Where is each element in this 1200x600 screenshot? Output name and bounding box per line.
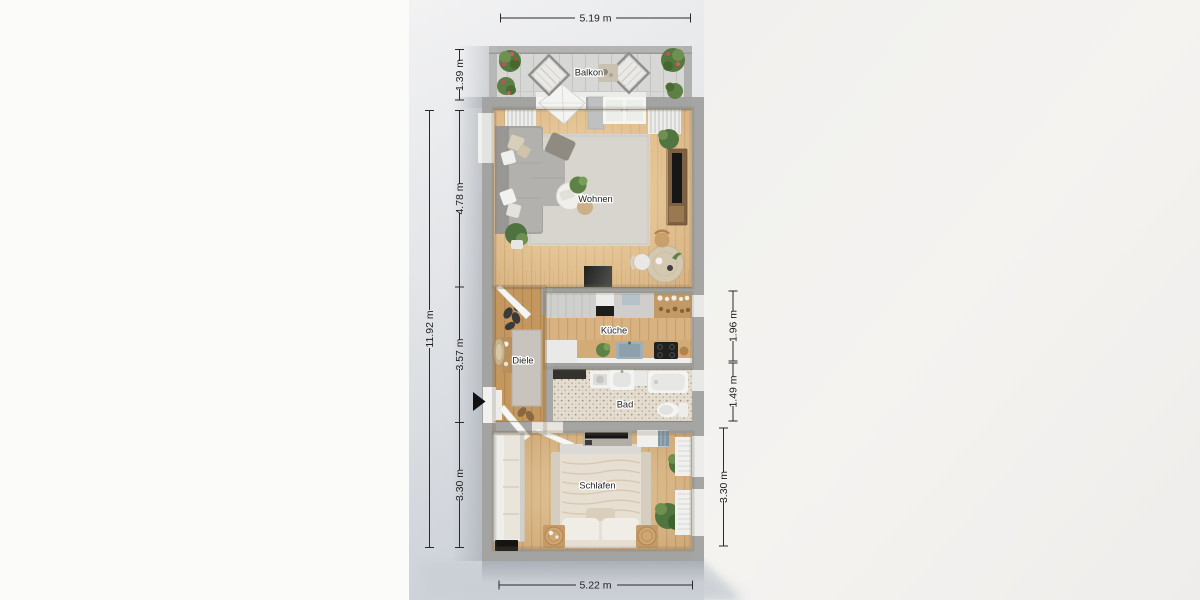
svg-text:1.96 m: 1.96 m [728, 310, 740, 342]
svg-text:11.92 m: 11.92 m [424, 310, 436, 347]
svg-text:Küche: Küche [601, 326, 627, 336]
svg-text:Schlafen: Schlafen [579, 481, 615, 491]
svg-text:1.49 m: 1.49 m [728, 375, 740, 407]
svg-text:4.78 m: 4.78 m [454, 182, 466, 214]
svg-text:5.19 m: 5.19 m [579, 13, 611, 25]
svg-text:3.30 m: 3.30 m [454, 469, 466, 501]
svg-text:3.30 m: 3.30 m [718, 471, 730, 503]
svg-text:Bad: Bad [617, 400, 634, 410]
svg-text:Wohnen: Wohnen [578, 194, 612, 204]
svg-text:3.57 m: 3.57 m [454, 338, 466, 370]
svg-text:Diele: Diele [512, 356, 533, 366]
svg-text:5.22 m: 5.22 m [579, 580, 611, 592]
svg-text:1.39 m: 1.39 m [454, 59, 466, 91]
svg-text:Balkon: Balkon [575, 68, 603, 78]
